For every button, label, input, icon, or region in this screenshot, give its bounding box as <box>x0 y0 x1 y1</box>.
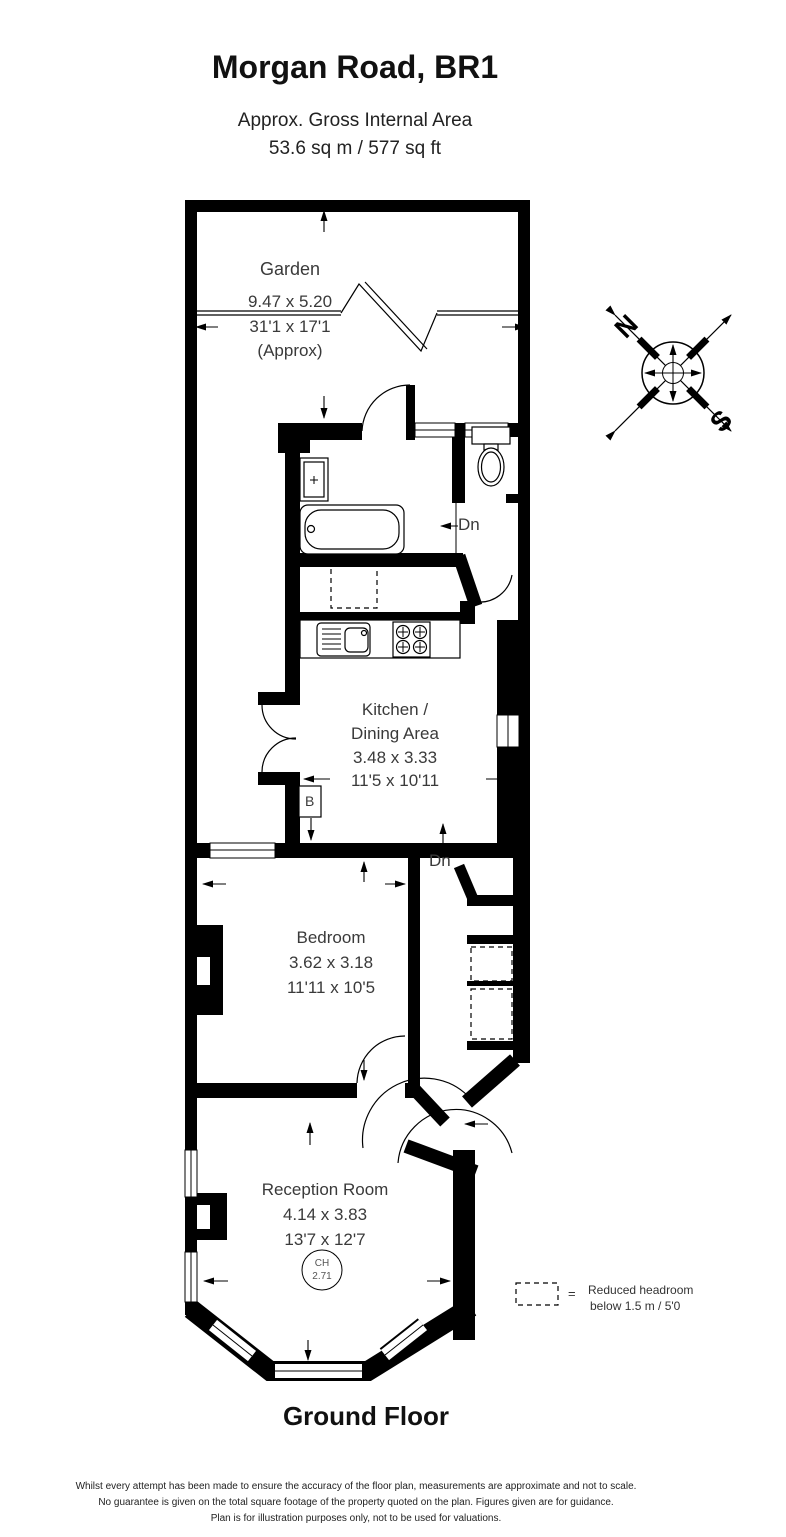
floorplan-page: N S Morgan Road, BR1 Approx. Gross Inter… <box>0 0 786 1537</box>
wall-segment <box>467 1060 515 1102</box>
ceiling-height-label: CH <box>315 1258 329 1269</box>
garden-metric: 9.47 x 5.20 <box>248 293 332 312</box>
wall-segment <box>459 556 476 606</box>
area-value: 53.6 sq m / 577 sq ft <box>269 139 441 160</box>
kitchen-label-line2: Dining Area <box>351 725 439 744</box>
door-arc <box>262 705 296 739</box>
door-arc <box>477 575 512 602</box>
wall-segment <box>467 981 513 986</box>
ceiling-height-circle <box>302 1250 342 1290</box>
wall-segment <box>415 1090 445 1122</box>
wall-segment <box>285 423 300 620</box>
garden-boundary-line <box>197 282 518 351</box>
chimney-recess <box>197 957 210 985</box>
floor-label: Ground Floor <box>283 1402 449 1431</box>
chimney-recess <box>197 1205 210 1229</box>
reception-metric: 4.14 x 3.83 <box>283 1206 367 1225</box>
stairs-down-label-lower: Dn <box>429 851 451 871</box>
bay-window <box>191 1307 471 1371</box>
hob-fixture <box>393 622 430 657</box>
ceiling-height-value: 2.71 <box>312 1271 331 1282</box>
legend-equals: = <box>568 1286 576 1301</box>
bedroom-imperial: 11'11 x 10'5 <box>287 979 375 998</box>
wall-segment <box>285 772 300 843</box>
garden-note: (Approx) <box>257 342 322 361</box>
disclaimer-line3: Plan is for illustration purposes only, … <box>211 1513 502 1524</box>
legend-line1: Reduced headroom <box>588 1283 693 1297</box>
disclaimer-line2: No guarantee is given on the total squar… <box>98 1497 613 1508</box>
wall-segment <box>467 1041 513 1050</box>
wall-segment <box>197 1083 357 1098</box>
basin-fixture <box>300 458 328 501</box>
bathtub-fixture <box>300 505 404 554</box>
bay-window-pane <box>213 1325 252 1356</box>
stairs-down-label-upper: Dn <box>458 515 480 535</box>
door-arc <box>362 385 410 431</box>
wall-segment <box>408 858 420 1098</box>
kitchen-counter <box>300 620 460 658</box>
window <box>415 423 455 437</box>
reduced-headroom-box <box>471 947 512 981</box>
reduced-headroom-box <box>471 989 512 1039</box>
window <box>185 1252 197 1302</box>
wall-segment <box>285 553 463 567</box>
wall-segment <box>459 866 473 899</box>
wall-segment <box>467 935 513 944</box>
area-label: Approx. Gross Internal Area <box>238 111 472 132</box>
disclaimer-line1: Whilst every attempt has been made to en… <box>76 1481 637 1492</box>
kitchen-imperial: 11'5 x 10'11 <box>351 772 439 791</box>
kitchen-label-line1: Kitchen / <box>362 701 428 720</box>
page-title: Morgan Road, BR1 <box>212 50 498 85</box>
garden-imperial: 31'1 x 17'1 <box>249 318 330 337</box>
wall-segment <box>185 200 530 212</box>
break-line-icon <box>341 284 437 351</box>
toilet-fixture <box>472 427 510 486</box>
compass-icon: N S <box>557 257 786 490</box>
wall-segment <box>406 385 415 440</box>
wall-segment <box>506 494 518 503</box>
reception-imperial: 13'7 x 12'7 <box>284 1231 365 1250</box>
bedroom-metric: 3.62 x 3.18 <box>289 954 373 973</box>
window <box>497 715 519 747</box>
reception-label: Reception Room <box>262 1181 389 1200</box>
garden-label: Garden <box>260 260 320 280</box>
window <box>210 843 275 858</box>
exterior-walls <box>185 200 530 1340</box>
wall-segment <box>185 200 197 1315</box>
kitchen-metric: 3.48 x 3.33 <box>353 749 437 768</box>
legend-dashed-box <box>516 1283 558 1305</box>
bedroom-label: Bedroom <box>297 929 366 948</box>
legend-line2: below 1.5 m / 5'0 <box>590 1299 680 1313</box>
boiler-label: B <box>305 793 314 809</box>
door-arc <box>262 738 296 772</box>
wall-segment <box>518 200 530 630</box>
wall-segment <box>258 692 300 705</box>
wall-segment <box>513 843 530 1063</box>
window <box>185 1150 197 1197</box>
reduced-headroom-box <box>331 563 377 608</box>
sink-fixture <box>317 623 370 656</box>
